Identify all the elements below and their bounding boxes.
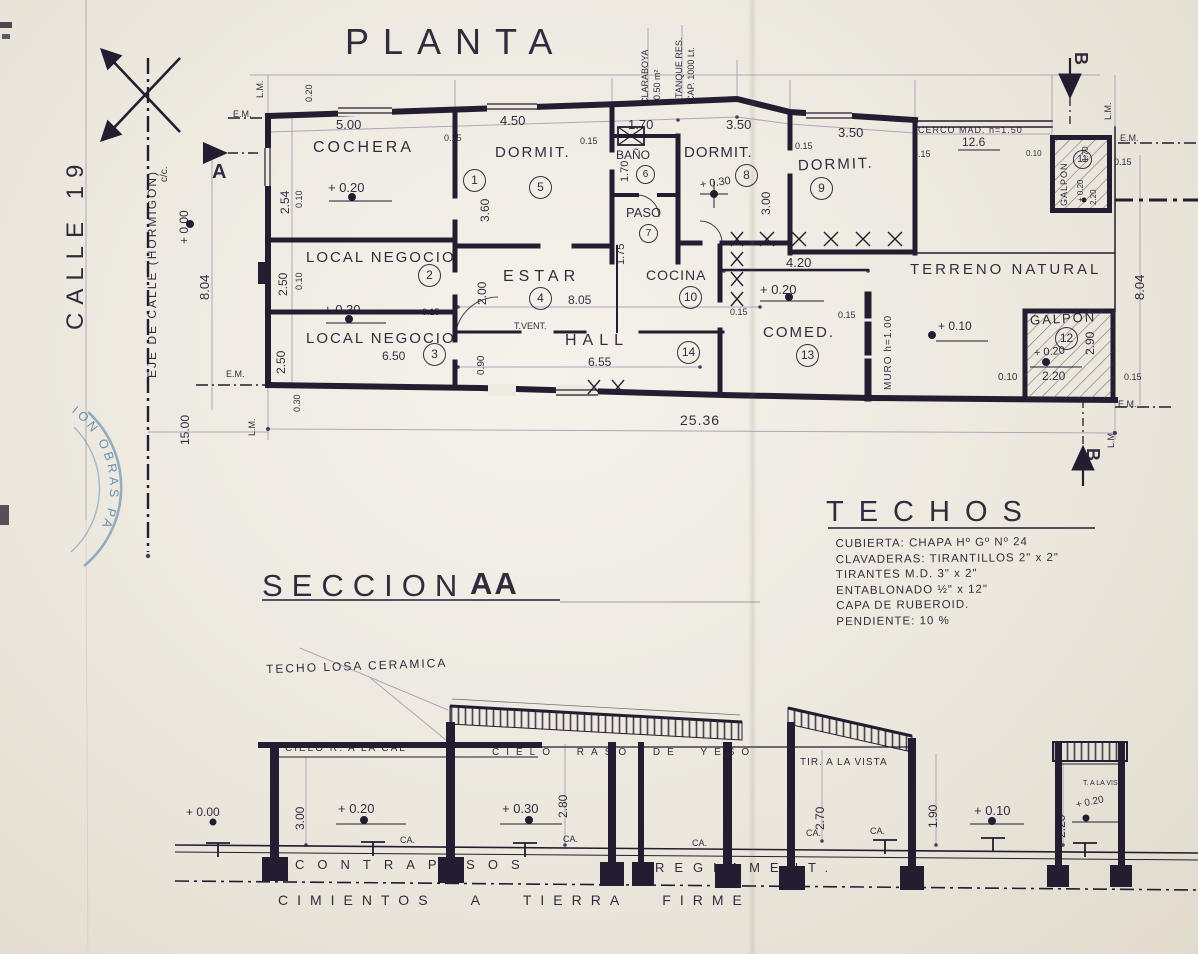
dim-room: 3.00 (760, 192, 772, 215)
dim-top: 3.50 (838, 126, 863, 139)
tanque-cap: CAP. 1000 Lt. (687, 47, 696, 102)
room-number-9: 9 (810, 177, 833, 200)
dim-local3-width: 6.50 (382, 350, 405, 362)
lm-label: L.M. (1104, 102, 1113, 120)
section-marker-b-top-label: B (1072, 52, 1090, 65)
dim-room: 3.60 (479, 199, 491, 222)
tanque-label: TANQUE RES. (675, 38, 684, 98)
cielo-cal-label: CIELO R. A LA CAL (285, 744, 407, 754)
street-name: CALLE 19 (64, 157, 88, 330)
em-label: E.M. (226, 370, 245, 379)
room-label-comed: COMED. (763, 325, 835, 340)
dim-total: 25.36 (680, 413, 720, 427)
dim-depth-left: 8.04 (198, 275, 211, 300)
lm-label: L.M. (248, 418, 257, 436)
dim-room: 6.55 (588, 356, 611, 368)
sec-dim: 2.80 (557, 795, 569, 818)
room-number-6: 6 (636, 165, 655, 184)
dimension-ticks (146, 115, 1117, 847)
cimientos-label: CIMIENTOS A TIERRA FIRME (278, 893, 751, 907)
dim-wall: 0.15 (795, 142, 813, 151)
dim-galpon: 2.90 (1084, 332, 1096, 355)
axis-cross-icon (102, 50, 180, 140)
street-axis-label: EJE DE CALLE (HORMIGON) (146, 170, 158, 378)
drain-t-icons (206, 838, 1097, 857)
em-label: E.M. (1120, 134, 1139, 143)
dim-galpon11: 2.20 (1090, 189, 1098, 205)
dim-left: 2.54 (279, 191, 291, 214)
sec-level: + 0.30 (502, 802, 539, 815)
section-marker-b-bottom-label: B (1084, 448, 1102, 461)
dim-wall: 0.20 (305, 84, 314, 102)
seccion-title: SECCION (262, 570, 466, 601)
room-number-8: 8 (735, 164, 758, 187)
paper-edge-artifacts (0, 0, 88, 954)
cielo-yeso-label: CIELO RASO DE YESO (492, 748, 756, 758)
dim-wall: 0.10 (295, 190, 304, 208)
lm-label: L.M. (256, 80, 265, 98)
tir-vista-label: TIR. A LA VISTA (800, 758, 888, 768)
level-street: + 0.00 (178, 210, 190, 244)
sec-level: + 0.10 (974, 804, 1011, 817)
techos-note-line: CLAVADERAS: TIRANTILLOS 2" x 2" (836, 552, 1059, 566)
room-number-1: 1 (463, 169, 486, 192)
section-marker-b-bottom-icon (1072, 400, 1094, 486)
room-label-galpon-11: GALPON (1060, 162, 1069, 206)
section-marker-a-label: A (212, 162, 226, 182)
techos-note-line: CAPA DE RUBEROID. (836, 599, 1059, 613)
dim-wall: 0.10 (295, 272, 304, 290)
dim-room: 4.20 (786, 256, 811, 269)
dim-galpon11: 1.70 (1082, 146, 1090, 162)
techos-note-line: TIRANTES M.D. 3" x 2" (836, 568, 1059, 582)
claraboya-area: 0.50 m² (653, 69, 662, 100)
plan-drawing: ION OBRAS PA (0, 0, 1198, 954)
dim-room: 2.00 (476, 282, 488, 305)
ca-label: CA. (400, 836, 415, 845)
seccion-title-suffix: AA (470, 568, 519, 599)
dim-wall: 0.15 (422, 308, 440, 317)
room-number-10: 10 (679, 286, 702, 309)
room-label-cocina: COCINA (646, 268, 706, 282)
ca-label: CA. (692, 839, 707, 848)
room-label-estar: ESTAR (503, 269, 580, 285)
dim-galpon: 2.20 (1042, 370, 1065, 382)
room-number-5: 5 (529, 176, 552, 199)
dim-wall: 0.30 (293, 394, 302, 412)
contrapisos-label: CONTRAPISOS (295, 858, 533, 871)
lm-label: L.M. (1107, 430, 1116, 448)
room-label-bano: BAÑO (616, 149, 650, 161)
room-label-cochera: COCHERA (313, 140, 414, 156)
sec-dim: 2.70 (814, 807, 826, 830)
room-number-2: 2 (418, 264, 441, 287)
tvent-label: T.VENT. (514, 322, 547, 331)
approval-stamp: ION OBRAS PA (69, 403, 121, 566)
room-number-4: 4 (529, 287, 552, 310)
dim-room: 1.75 (616, 244, 627, 265)
techos-note-line: PENDIENTE: 10 % (836, 614, 1059, 628)
dim-wall: 0.15 (1124, 373, 1142, 382)
sec-dim: 3.00 (294, 807, 306, 830)
level-comedor: + 0.20 (760, 283, 797, 296)
room-label-paso: PASO (626, 206, 661, 219)
blueprint-page: ION OBRAS PA PLANTA TECHOS SECCION AA CU… (0, 0, 1198, 954)
dim-galpon11: 0.10 (1026, 150, 1042, 158)
street-axis-sub: c/c. (160, 166, 170, 182)
dim-depth-right: 8.04 (1133, 275, 1146, 300)
sec-dim: 2.20 (1055, 815, 1067, 838)
dim-top: 5.00 (336, 118, 361, 131)
em-label: E.M. (1118, 400, 1137, 409)
sec-dim: 1.90 (927, 805, 939, 828)
room-label-galpon-12: GALPON (1030, 310, 1097, 326)
dim-room: 0.90 (477, 356, 487, 375)
terreno-natural-label: TERRENO NATURAL (910, 262, 1101, 277)
level-terreno: + 0.10 (938, 320, 972, 332)
room-label-dormit-5: DORMIT. (495, 145, 571, 160)
dim-wall: 0.15 (730, 308, 748, 317)
techos-title: TECHOS (826, 498, 1037, 527)
level-galpon-11: + 0.20 (1077, 180, 1085, 202)
dim-wall: 0.15 (913, 150, 931, 159)
room-label-dormit-9: DORMIT. (798, 156, 874, 174)
room-number-7: 7 (639, 224, 658, 243)
section-marker-b-top-icon (1059, 58, 1081, 124)
dim-wall: 0.15 (1114, 158, 1132, 167)
plan-title: PLANTA (345, 24, 566, 60)
dim-wall: 0.15 (580, 137, 598, 146)
dim-left: 2.50 (277, 273, 289, 296)
room-label-dormit-8: DORMIT. (684, 145, 753, 160)
dim-wall: 0.15 (444, 134, 462, 143)
techos-note-line: CUBIERTA: CHAPA Hº Gº Nº 24 (836, 537, 1059, 551)
muro-label: MURO h=1.00 (884, 315, 894, 390)
room-number-13: 13 (796, 344, 819, 367)
cerco-length: 12.6 (962, 136, 985, 148)
ca-label: CA. (563, 835, 578, 844)
cerco-label: CERCO MAD. h=1.50 (918, 126, 1023, 135)
techos-notes: CUBIERTA: CHAPA Hº Gº Nº 24 CLAVADERAS: … (836, 537, 1060, 632)
ca-label: CA. (806, 829, 821, 838)
level-cochera: + 0.20 (328, 181, 365, 194)
room-label-local-2: LOCAL NEGOCIO (306, 250, 456, 265)
dim-wall: 0.15 (838, 311, 856, 320)
dim-top: 1.70 (628, 118, 653, 131)
t-vista-label: T. A LA VIST. (1083, 780, 1123, 787)
room-label-hall: HALL (565, 333, 629, 349)
room-number-14: 14 (677, 341, 700, 364)
dim-street-width: 15.00 (179, 415, 191, 445)
dim-galpon: 0.10 (998, 373, 1017, 383)
reglament-label: REGLAMENT. (655, 861, 838, 874)
axis-lines (148, 58, 1198, 552)
level-local: + 0.30 (324, 303, 361, 316)
techos-note-line: ENTABLONADO ½" x 12" (836, 583, 1059, 597)
room-number-3: 3 (423, 343, 446, 366)
dim-top: 3.50 (726, 118, 751, 131)
dim-left: 2.50 (275, 351, 287, 374)
dim-top: 4.50 (500, 114, 525, 127)
ca-label: CA. (870, 827, 885, 836)
sec-level: + 0.00 (186, 806, 220, 818)
dim-room: 1.70 (620, 161, 631, 182)
dim-room: 8.05 (568, 294, 591, 306)
claraboya-label: CLARABOYA (641, 50, 650, 104)
sec-level: + 0.20 (338, 802, 375, 815)
em-label: E.M. (233, 110, 252, 119)
